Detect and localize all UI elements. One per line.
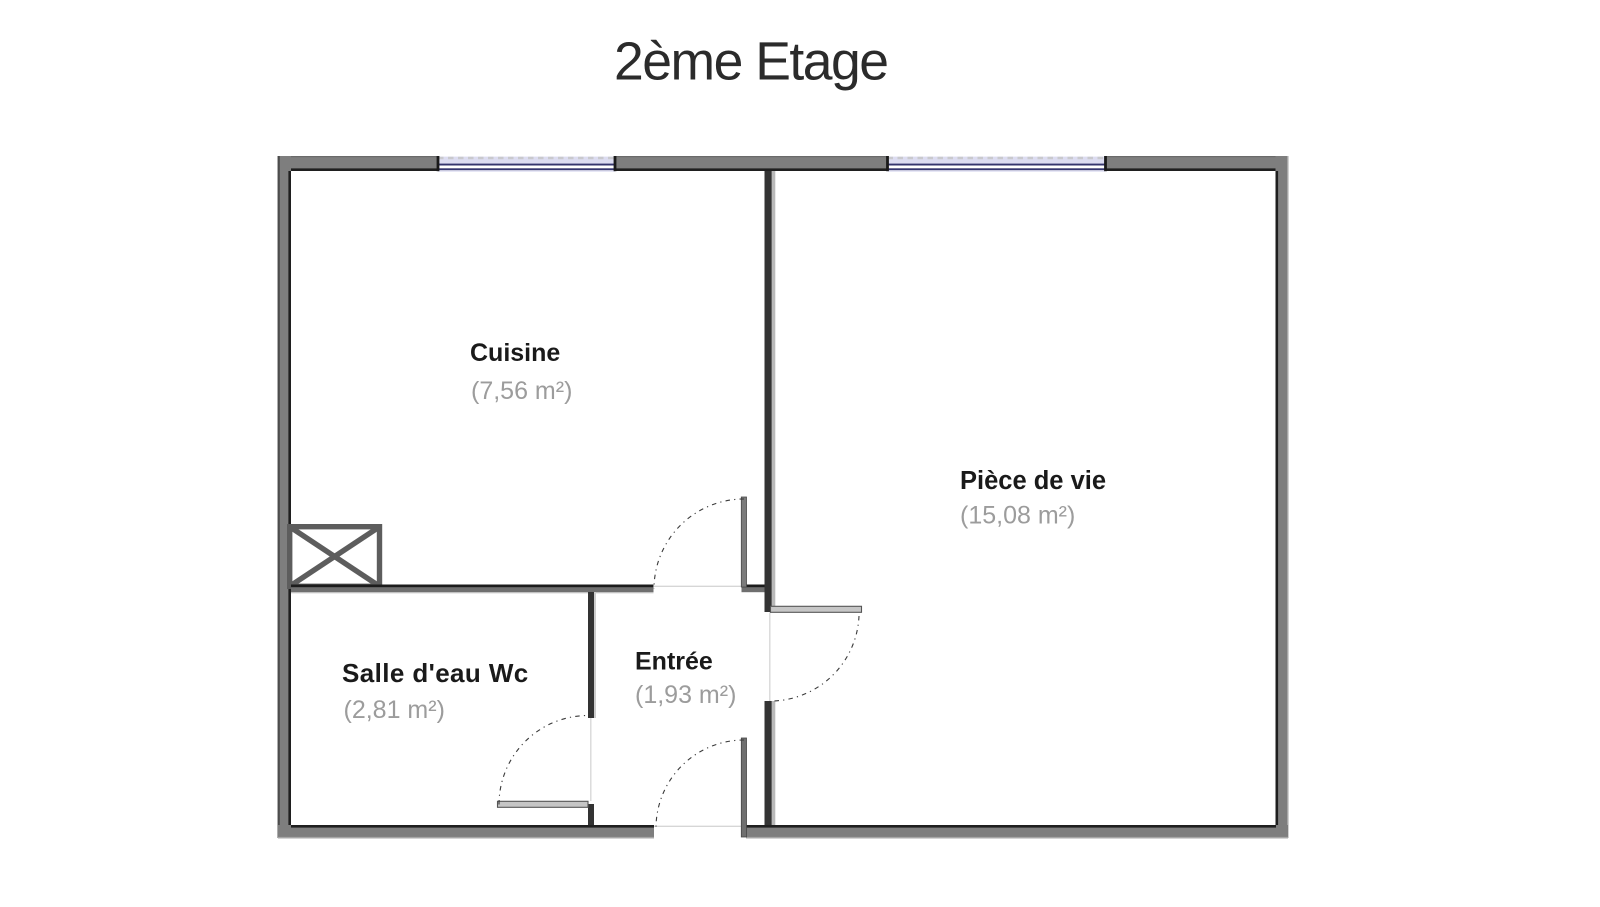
svg-text:(1,93 m²): (1,93 m²): [635, 681, 736, 709]
svg-text:(7,56 m²): (7,56 m²): [471, 377, 572, 405]
svg-text:Cuisine: Cuisine: [470, 339, 560, 367]
svg-text:Entrée: Entrée: [635, 648, 713, 676]
svg-text:(2,81 m²): (2,81 m²): [344, 696, 445, 724]
svg-text:2ème Etage: 2ème Etage: [614, 33, 888, 92]
svg-text:(15,08 m²): (15,08 m²): [960, 502, 1075, 530]
svg-text:Salle d'eau Wc: Salle d'eau Wc: [342, 658, 529, 688]
svg-text:Pièce de vie: Pièce de vie: [960, 467, 1106, 495]
